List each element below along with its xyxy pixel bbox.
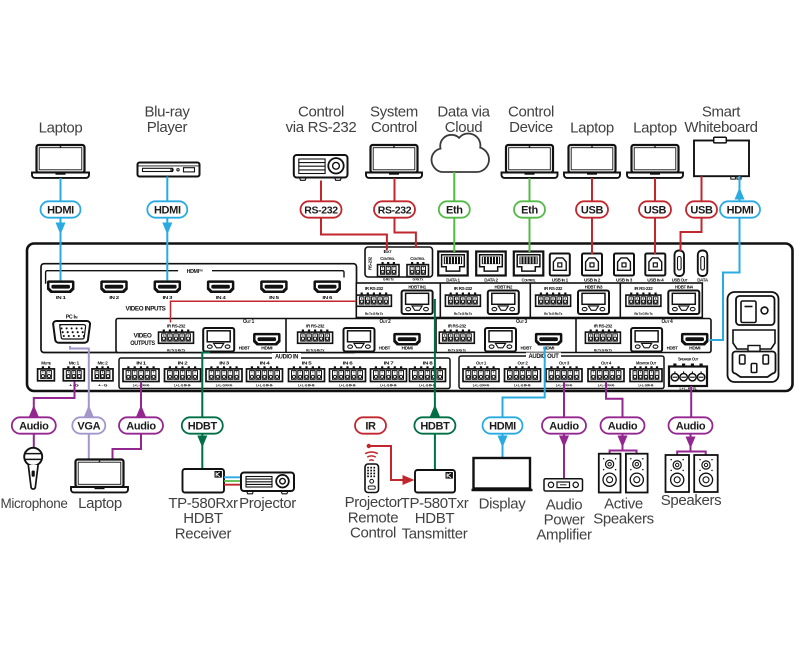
svg-text:DATA: DATA [697, 278, 709, 283]
svg-text:Control: Control [371, 119, 417, 136]
svg-text:L+ L- G R+ R-: L+ L- G R+ R- [514, 383, 531, 388]
svg-text:Control: Control [508, 104, 554, 121]
svg-text:Speakers: Speakers [593, 511, 654, 528]
svg-text:Audio: Audio [126, 420, 156, 432]
svg-text:Rx Tx G Rx Tx: Rx Tx G Rx Tx [454, 311, 473, 316]
svg-text:Amplifier: Amplifier [536, 527, 592, 544]
svg-text:Laptop: Laptop [39, 120, 83, 137]
svg-text:Rx Tx G Rx Tx: Rx Tx G Rx Tx [594, 347, 613, 352]
svg-text:Data via: Data via [437, 104, 490, 121]
svg-text:USB IN 2: USB IN 2 [584, 278, 601, 283]
svg-text:Rx Tx G Rx Tx: Rx Tx G Rx Tx [544, 311, 563, 316]
svg-text:HDBT: HDBT [521, 345, 532, 351]
svg-text:Audio: Audio [19, 420, 49, 432]
svg-text:MIC 1: MIC 1 [69, 361, 80, 366]
svg-text:IN 5: IN 5 [269, 295, 279, 301]
svg-text:IN 6: IN 6 [343, 361, 354, 366]
svg-text:USB IN 3: USB IN 3 [616, 278, 633, 283]
svg-text:HDMI: HDMI [261, 345, 273, 351]
svg-text:Eth: Eth [446, 204, 463, 216]
svg-text:Laptop: Laptop [570, 120, 614, 137]
svg-text:CONTROL: CONTROL [522, 278, 536, 283]
svg-text:Rx Tx G Rx Tx: Rx Tx G Rx Tx [306, 347, 325, 352]
svg-text:L+ L- G R+ R-: L+ L- G R+ R- [339, 383, 356, 388]
svg-text:HDMI: HDMI [489, 420, 516, 432]
svg-text:OUT 3: OUT 3 [559, 361, 570, 366]
svg-text:Smart: Smart [702, 104, 741, 121]
svg-text:Audio: Audio [608, 420, 638, 432]
svg-text:HDMI: HDMI [47, 204, 74, 216]
svg-text:HDBT IN4: HDBT IN4 [675, 285, 693, 290]
svg-text:HDMI: HDMI [689, 345, 701, 351]
svg-text:L+ L- G R+ R-: L+ L- G R+ R- [380, 383, 397, 388]
svg-text:IN 7: IN 7 [384, 361, 395, 366]
svg-text:VGA: VGA [77, 420, 100, 432]
svg-text:HDMI: HDMI [154, 204, 181, 216]
svg-text:IR RS-232: IR RS-232 [544, 286, 563, 291]
svg-text:Speakers: Speakers [661, 492, 722, 509]
svg-text:IR RS-232: IR RS-232 [634, 286, 653, 291]
svg-text:HDMI: HDMI [727, 204, 754, 216]
svg-text:Receiver: Receiver [175, 526, 232, 543]
svg-text:L+ L- G R+ R-: L+ L- G R+ R- [298, 383, 315, 388]
svg-text:Player: Player [147, 119, 188, 136]
svg-text:OUT 1: OUT 1 [476, 361, 487, 366]
svg-text:HDBT IN3: HDBT IN3 [585, 285, 603, 290]
svg-text:IR RS-232: IR RS-232 [365, 286, 384, 291]
svg-text:Control: Control [298, 104, 344, 121]
svg-text:Display: Display [479, 496, 527, 513]
svg-text:DATA 1: DATA 1 [446, 278, 460, 283]
svg-text:IN 5: IN 5 [302, 361, 313, 366]
svg-text:Projector: Projector [239, 495, 296, 512]
svg-text:SPEAKER OUT: SPEAKER OUT [678, 357, 699, 362]
svg-text:MONITOR OUT: MONITOR OUT [636, 361, 657, 366]
svg-text:Rx Tx G Rx Tx: Rx Tx G Rx Tx [167, 347, 186, 352]
svg-text:USB: USB [690, 204, 713, 216]
svg-text:IR RS-232: IR RS-232 [306, 323, 325, 328]
svg-text:Audio: Audio [676, 420, 706, 432]
svg-text:CONTROL: CONTROL [380, 256, 396, 261]
svg-text:HDBT: HDBT [420, 420, 450, 432]
svg-text:Tansmitter: Tansmitter [402, 526, 468, 543]
svg-text:via RS-232: via RS-232 [286, 119, 357, 136]
svg-text:Cloud: Cloud [445, 119, 482, 136]
svg-text:Rx Tx G Rx Tx: Rx Tx G Rx Tx [448, 347, 467, 352]
svg-text:RS-232: RS-232 [368, 256, 373, 270]
svg-text:HDBT IN2: HDBT IN2 [495, 285, 513, 290]
svg-text:IR RS-232: IR RS-232 [594, 323, 613, 328]
svg-text:L+ L- R+ R-: L+ L- R+ R- [680, 386, 698, 391]
svg-text:HDBT: HDBT [379, 345, 390, 351]
svg-text:Laptop: Laptop [633, 120, 677, 137]
svg-text:+ - G: + - G [98, 383, 107, 388]
svg-text:L+ L- G R+ R-: L+ L- G R+ R- [473, 383, 490, 388]
svg-text:Audio: Audio [549, 420, 579, 432]
svg-text:Device: Device [509, 119, 553, 136]
svg-text:HDBT: HDBT [667, 345, 678, 351]
svg-text:HDBT: HDBT [188, 420, 218, 432]
svg-text:RS-232: RS-232 [378, 204, 412, 216]
svg-text:Rx Tx G Rx Tx: Rx Tx G Rx Tx [634, 311, 653, 316]
svg-text:IN 1: IN 1 [56, 295, 66, 301]
svg-text:USB IN 1: USB IN 1 [552, 278, 569, 283]
svg-text:IR RS-232: IR RS-232 [454, 286, 473, 291]
svg-text:L+ L- G R+ R-: L+ L- G R+ R- [639, 383, 655, 388]
svg-text:OUTPUTS: OUTPUTS [130, 340, 155, 347]
svg-text:HDBT: HDBT [183, 510, 223, 527]
svg-text:IN 3: IN 3 [163, 295, 173, 301]
svg-text:IR RS-232: IR RS-232 [448, 323, 467, 328]
svg-text:IN 3: IN 3 [219, 361, 230, 366]
svg-text:IN 4: IN 4 [216, 295, 226, 301]
svg-text:Rx Tx G Rx Tx: Rx Tx G Rx Tx [365, 311, 384, 316]
svg-text:System: System [370, 104, 418, 121]
svg-text:IN 8: IN 8 [423, 361, 434, 366]
svg-text:Projector: Projector [345, 494, 402, 511]
svg-text:IR RS-232: IR RS-232 [167, 323, 186, 328]
svg-text:IN 4: IN 4 [260, 361, 271, 366]
svg-text:MIC 2: MIC 2 [98, 361, 109, 366]
svg-text:CONTROL: CONTROL [410, 256, 426, 261]
svg-text:VIDEO: VIDEO [134, 333, 153, 340]
svg-text:L+ L- G R+ R-: L+ L- G R+ R- [216, 383, 233, 388]
svg-text:DATA 2: DATA 2 [484, 278, 498, 283]
svg-text:OUT 4: OUT 4 [601, 361, 612, 366]
svg-text:USB: USB [644, 204, 667, 216]
svg-text:Laptop: Laptop [78, 495, 122, 512]
svg-text:USB OUT: USB OUT [672, 278, 689, 283]
svg-text:IN 2: IN 2 [178, 361, 189, 366]
svg-text:AUDIO IN: AUDIO IN [275, 354, 299, 361]
svg-text:L+ L- G R+ R-: L+ L- G R+ R- [256, 383, 273, 388]
svg-text:VIDEO INPUTS: VIDEO INPUTS [126, 306, 167, 313]
svg-text:EXT: EXT [384, 249, 393, 254]
svg-text:RS-232: RS-232 [304, 204, 338, 216]
svg-text:Control: Control [350, 525, 396, 542]
svg-text:IN 6: IN 6 [322, 295, 332, 301]
svg-text:IR: IR [365, 420, 376, 432]
svg-text:HDBT IN1: HDBT IN1 [408, 285, 426, 290]
svg-text:HDMI: HDMI [402, 345, 414, 351]
svg-text:IN 1: IN 1 [136, 361, 147, 366]
svg-text:IN 2: IN 2 [109, 295, 119, 301]
svg-text:HDBT: HDBT [239, 345, 250, 351]
svg-text:Blu-ray: Blu-ray [144, 104, 190, 121]
svg-text:G Rx Tx: G Rx Tx [413, 276, 425, 281]
svg-text:HDBT: HDBT [415, 510, 455, 527]
svg-text:Microphone: Microphone [0, 496, 67, 511]
svg-text:USB: USB [581, 204, 604, 216]
svg-text:G Rx Tx: G Rx Tx [383, 276, 395, 281]
svg-text:OUT 2: OUT 2 [518, 361, 529, 366]
svg-text:USB IN 4: USB IN 4 [647, 278, 664, 283]
svg-text:L+ L- G R+ R-: L+ L- G R+ R- [174, 383, 191, 388]
svg-text:Eth: Eth [521, 204, 538, 216]
svg-text:Whiteboard: Whiteboard [684, 119, 757, 136]
svg-text:MUTE: MUTE [41, 361, 52, 366]
